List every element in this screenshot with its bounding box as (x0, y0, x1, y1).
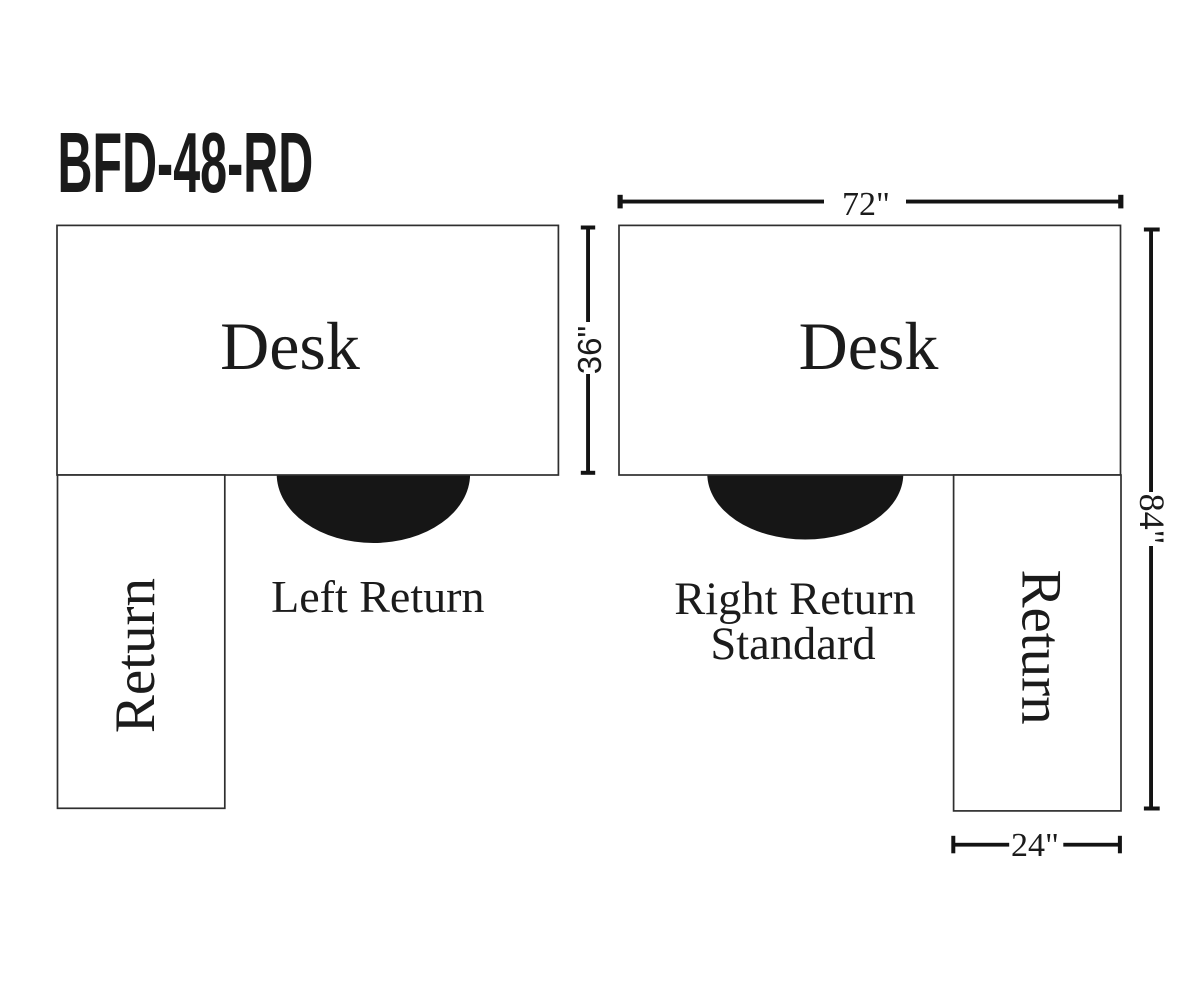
svg-text:Desk: Desk (799, 308, 939, 384)
svg-text:36": 36" (571, 326, 608, 374)
svg-text:Desk: Desk (220, 308, 360, 384)
svg-text:BFD-48-RD: BFD-48-RD (58, 115, 314, 211)
svg-text:Right Return: Right Return (674, 574, 916, 625)
svg-text:24": 24" (1011, 827, 1059, 864)
svg-text:Left Return: Left Return (271, 571, 484, 622)
svg-text:Standard: Standard (710, 619, 875, 670)
svg-text:72": 72" (842, 186, 890, 223)
svg-text:Return: Return (104, 578, 167, 733)
svg-text:Return: Return (1010, 569, 1073, 724)
svg-text:84": 84" (1132, 494, 1172, 545)
